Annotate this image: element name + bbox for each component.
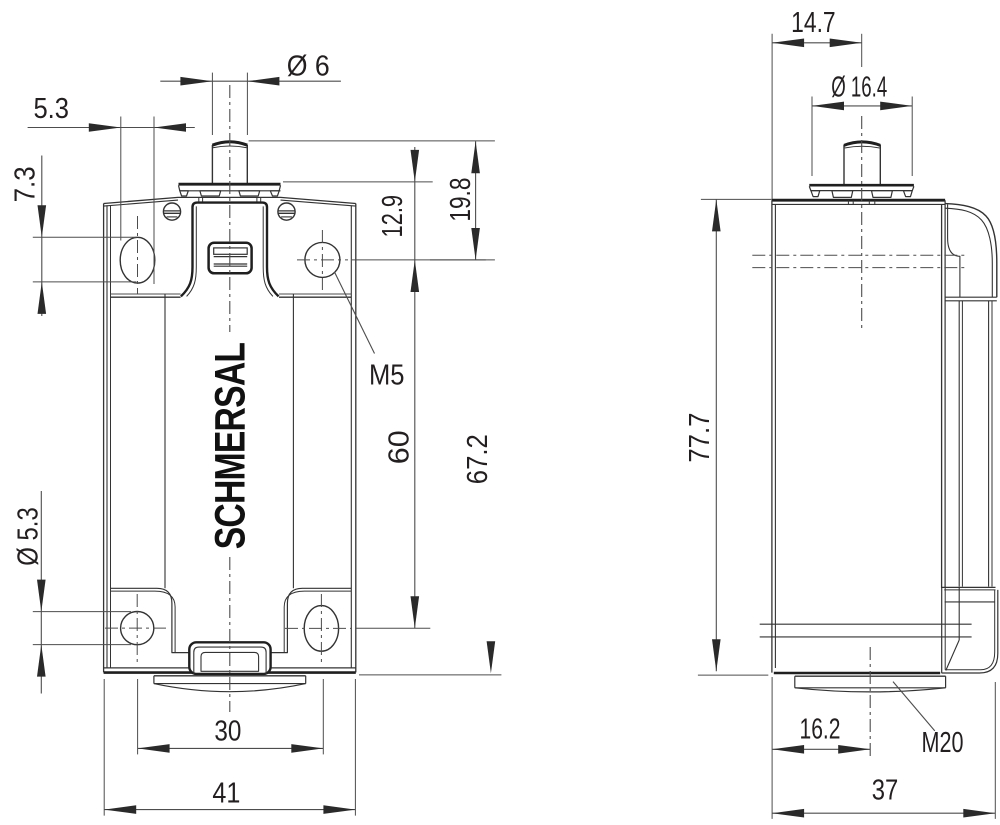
svg-text:37: 37 [872,774,899,806]
svg-text:67.2: 67.2 [462,434,494,484]
svg-text:77.7: 77.7 [684,413,716,463]
svg-text:Ø 16.4: Ø 16.4 [831,72,887,104]
svg-text:SCHMERSAL: SCHMERSAL [206,343,254,550]
svg-text:M5: M5 [369,359,405,391]
svg-text:Ø 5.3: Ø 5.3 [13,507,45,566]
svg-text:7.3: 7.3 [10,166,42,202]
svg-text:5.3: 5.3 [33,93,69,125]
svg-text:41: 41 [212,778,240,810]
svg-text:16.2: 16.2 [800,713,841,745]
svg-text:19.8: 19.8 [445,178,477,222]
svg-text:12.9: 12.9 [377,195,409,238]
svg-text:30: 30 [214,716,241,748]
svg-text:Ø 6: Ø 6 [287,51,330,83]
svg-text:M20: M20 [922,727,964,759]
svg-text:14.7: 14.7 [791,7,836,39]
svg-text:60: 60 [384,430,416,464]
